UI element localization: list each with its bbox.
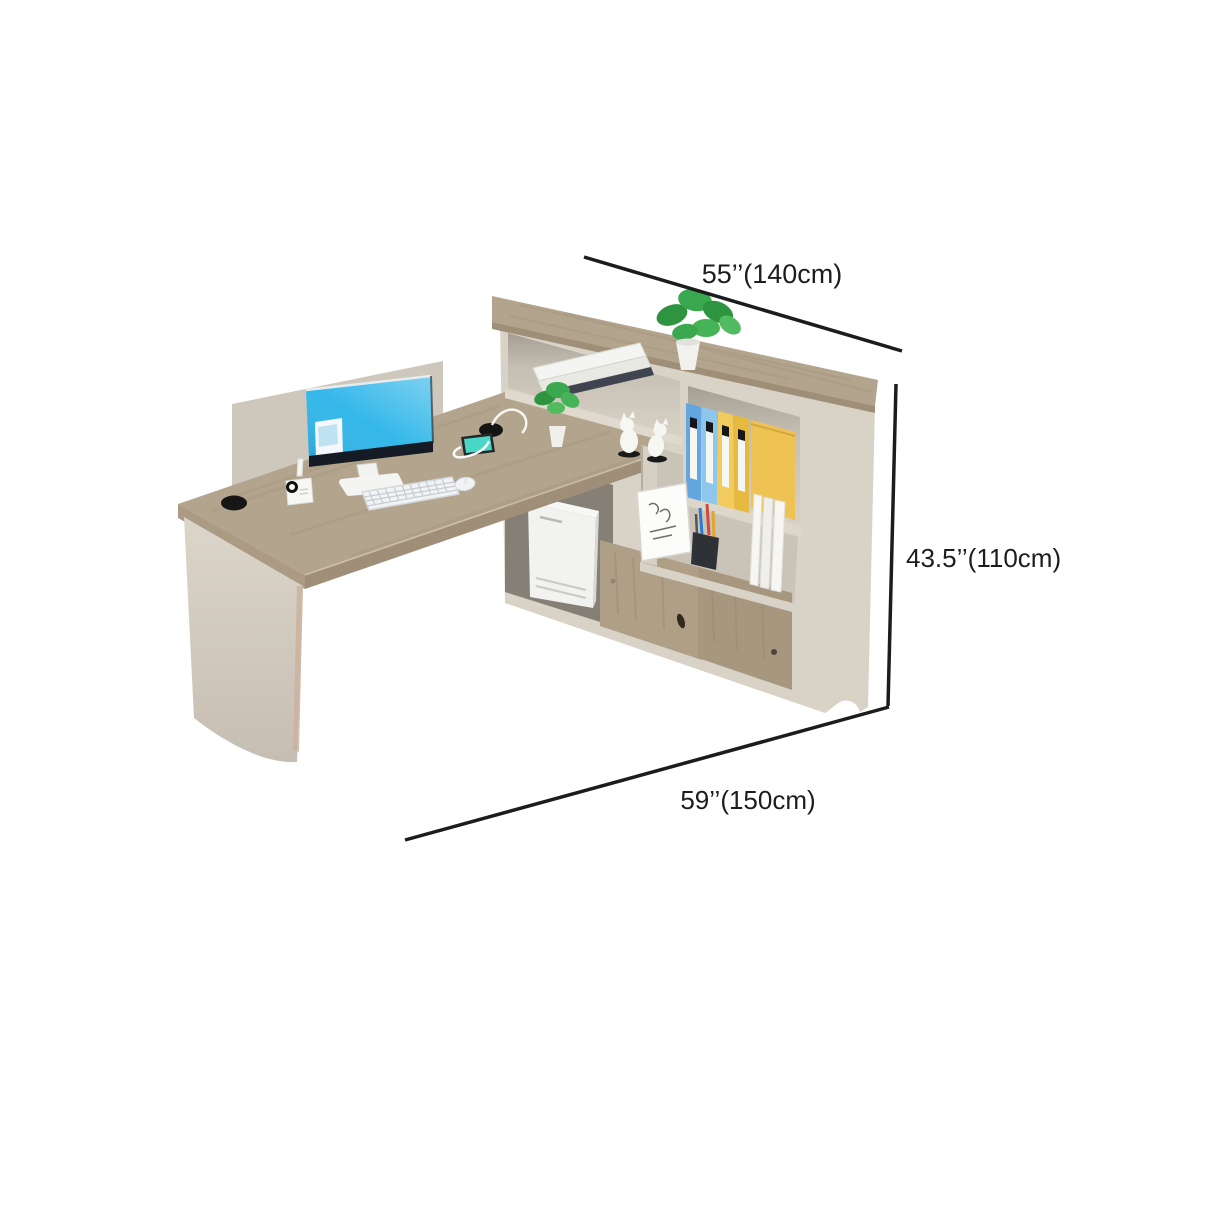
product-dimension-image: 55’’(140cm) 43.5’’(110cm) 59’’(150cm) <box>0 0 1214 1214</box>
binder-label <box>722 433 729 488</box>
dimension-line-bottom <box>405 707 889 840</box>
binder-label <box>706 429 713 484</box>
binder-label-patch <box>690 417 697 429</box>
binder-label-patch <box>722 425 729 437</box>
cable-grommet-left <box>221 496 247 511</box>
pen-cup-body <box>691 532 719 570</box>
dimension-label-top: 55’’(140cm) <box>702 259 843 289</box>
screen-window-content <box>318 424 338 447</box>
clock-stick <box>297 459 303 476</box>
dimension-label-bottom: 59’’(150cm) <box>680 785 815 815</box>
door-knob <box>771 649 777 655</box>
scene: 55’’(140cm) 43.5’’(110cm) 59’’(150cm) <box>0 0 1214 1214</box>
plant-pot-rim <box>676 339 700 346</box>
dimension-label-right: 43.5’’(110cm) <box>906 543 1061 573</box>
binder-label-patch <box>738 429 745 441</box>
pen <box>700 508 702 534</box>
binder-label-patch <box>706 421 713 433</box>
binder-label <box>690 425 697 480</box>
pen <box>707 504 709 535</box>
cat-body <box>620 429 638 453</box>
pen <box>713 511 714 537</box>
dimension-line-right <box>888 384 896 706</box>
sketch-pad <box>637 483 691 561</box>
binder-label <box>738 437 745 492</box>
sketch-pad-paper <box>637 483 691 561</box>
plant-leaf <box>547 402 565 414</box>
cpu-tower <box>528 496 599 608</box>
upright-books <box>750 494 785 592</box>
pen <box>696 514 697 534</box>
door-screw <box>611 579 616 584</box>
